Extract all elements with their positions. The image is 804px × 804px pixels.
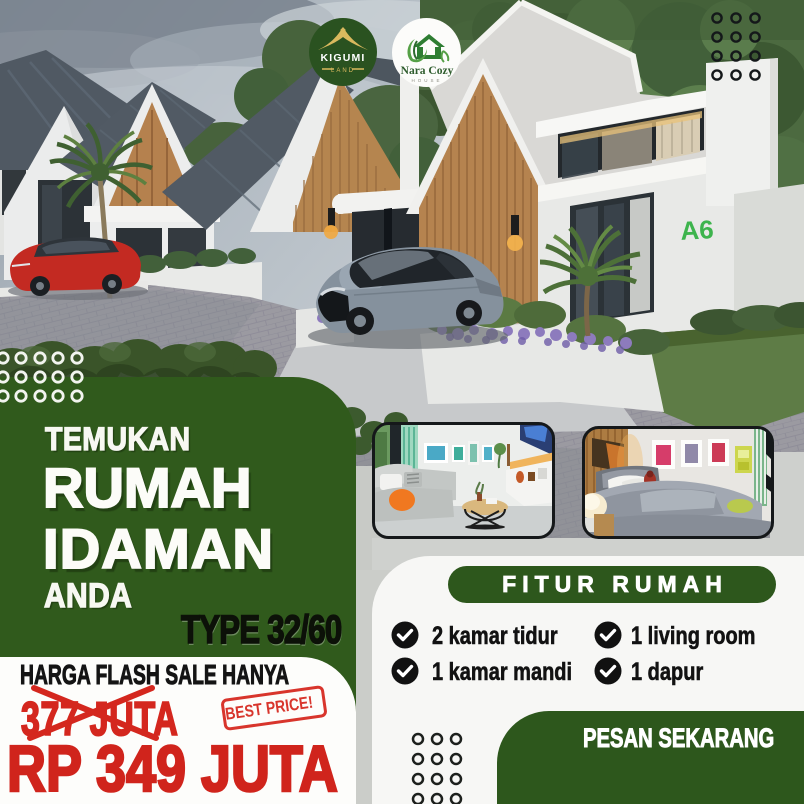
svg-text:A6: A6	[680, 214, 715, 246]
svg-text:HOUSE: HOUSE	[411, 78, 442, 83]
svg-text:KIGUMI: KIGUMI	[320, 52, 365, 64]
svg-text:Nara Cozy: Nara Cozy	[401, 65, 454, 77]
svg-text:LAND: LAND	[331, 68, 355, 74]
